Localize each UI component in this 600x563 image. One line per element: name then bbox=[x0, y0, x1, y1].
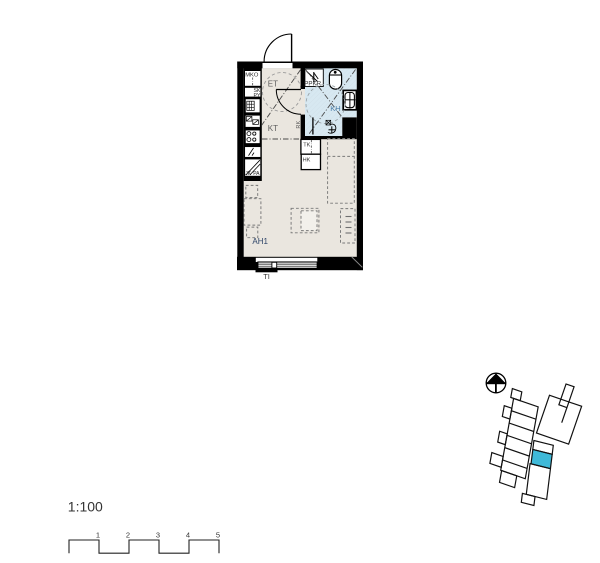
svg-text:5: 5 bbox=[216, 531, 220, 540]
svg-text:1: 1 bbox=[96, 531, 100, 540]
svg-text:AH1: AH1 bbox=[252, 237, 268, 246]
svg-text:JK: JK bbox=[245, 171, 252, 177]
svg-text:TK: TK bbox=[303, 142, 310, 148]
svg-text:ET: ET bbox=[268, 79, 278, 88]
svg-text:MKO: MKO bbox=[245, 72, 259, 78]
svg-text:RK: RK bbox=[296, 121, 302, 129]
svg-text:HK: HK bbox=[303, 158, 311, 164]
svg-text:KT: KT bbox=[268, 124, 278, 133]
svg-text:3: 3 bbox=[156, 531, 160, 540]
svg-text:TI: TI bbox=[263, 272, 270, 281]
svg-text:4: 4 bbox=[186, 531, 190, 540]
svg-text:1:100: 1:100 bbox=[68, 498, 103, 514]
svg-text:2: 2 bbox=[126, 531, 130, 540]
svg-text:PA: PA bbox=[253, 171, 260, 177]
svg-text:KH: KH bbox=[330, 104, 340, 113]
